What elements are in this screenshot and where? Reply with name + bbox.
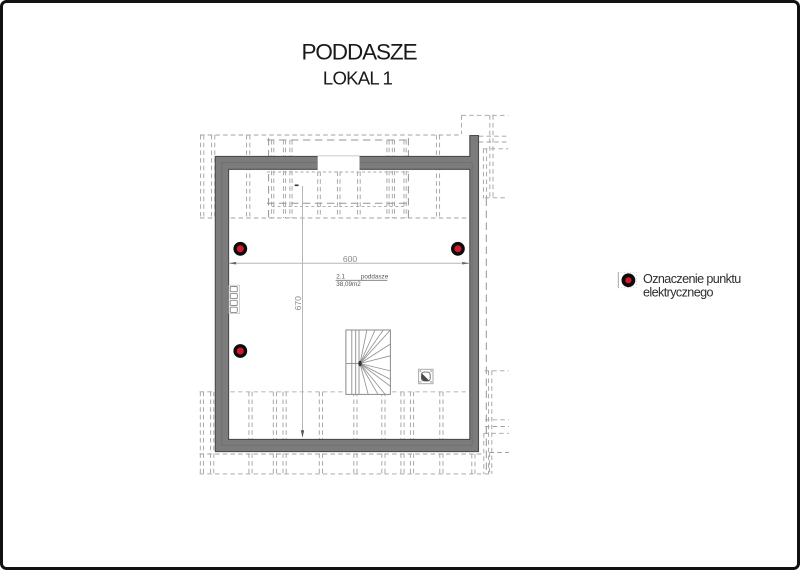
svg-text:38,09m2: 38,09m2 [336, 281, 361, 288]
svg-text:670: 670 [293, 296, 303, 311]
svg-text:poddasze: poddasze [361, 274, 389, 281]
svg-text:elektrycznego: elektrycznego [643, 286, 713, 300]
svg-text:LOKAL 1: LOKAL 1 [323, 67, 393, 88]
svg-text:600: 600 [343, 254, 358, 264]
svg-text:PODDASZE: PODDASZE [302, 40, 418, 65]
svg-text:Oznaczenie punktu: Oznaczenie punktu [643, 272, 741, 286]
svg-text:2.1: 2.1 [336, 274, 345, 281]
